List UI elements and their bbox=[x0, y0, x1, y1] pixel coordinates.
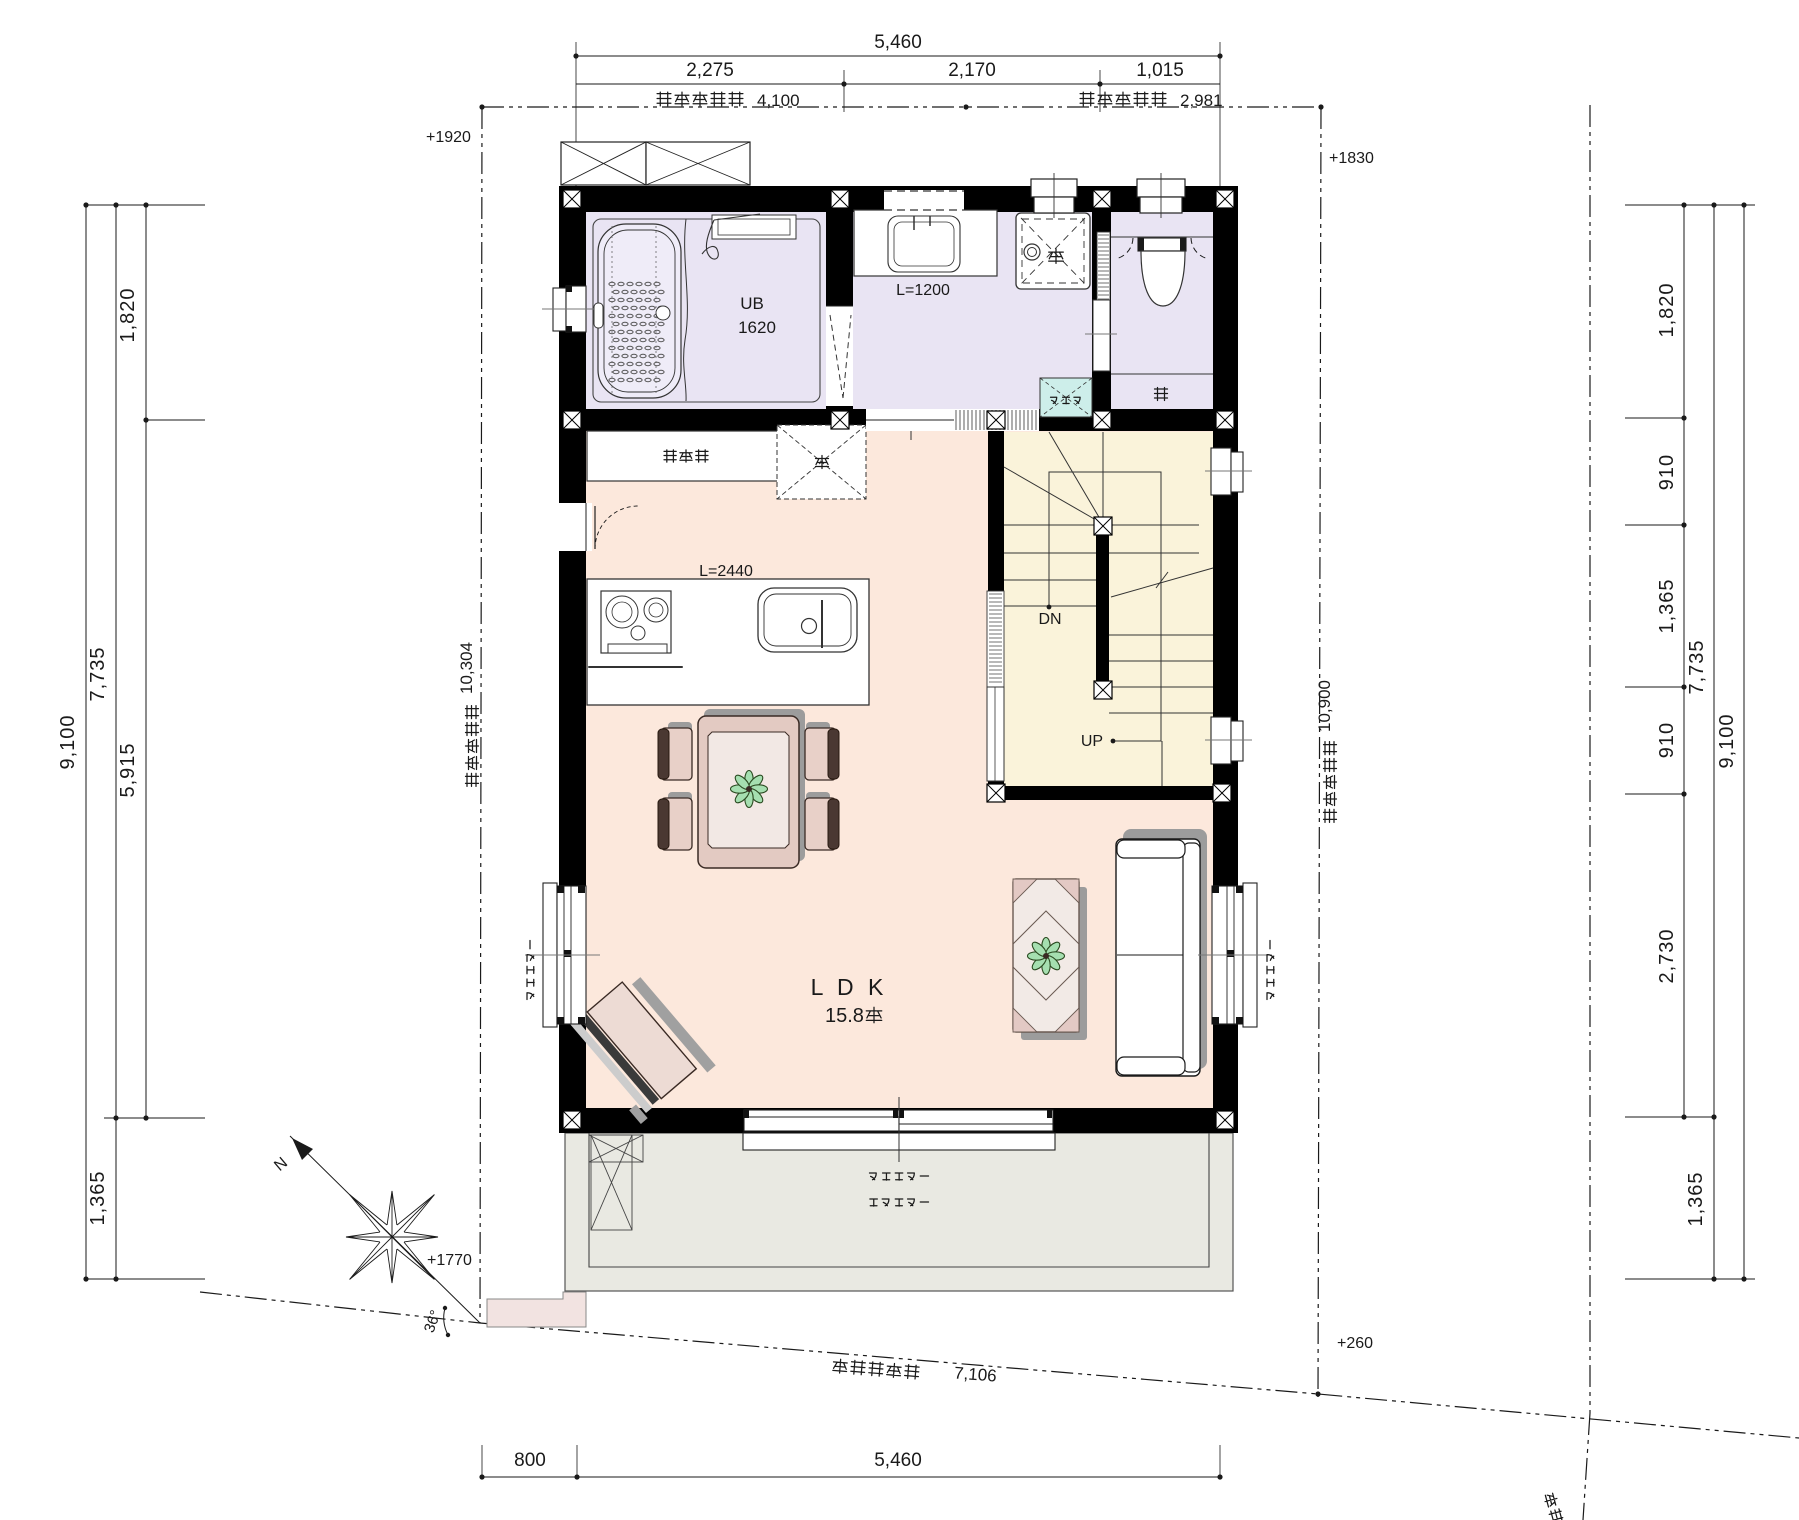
svg-text:800: 800 bbox=[514, 1450, 546, 1471]
svg-text:L D K: L D K bbox=[811, 974, 888, 1000]
svg-text:10,304: 10,304 bbox=[457, 642, 476, 694]
svg-text:1,015: 1,015 bbox=[1136, 60, 1184, 81]
svg-text:+1920: +1920 bbox=[426, 129, 471, 146]
svg-text:1,365: 1,365 bbox=[1685, 1171, 1707, 1226]
svg-text:15.8: 15.8 bbox=[825, 1005, 864, 1027]
svg-text:L=1200: L=1200 bbox=[896, 282, 950, 299]
svg-text:1620: 1620 bbox=[738, 318, 776, 337]
svg-text:UB: UB bbox=[740, 294, 764, 313]
svg-text:1,365: 1,365 bbox=[1656, 578, 1678, 633]
svg-text:5,915: 5,915 bbox=[117, 742, 139, 797]
svg-text:1,820: 1,820 bbox=[117, 287, 139, 342]
svg-text:+260: +260 bbox=[1337, 1335, 1373, 1352]
svg-text:1,820: 1,820 bbox=[1656, 282, 1678, 337]
svg-text:DN: DN bbox=[1038, 611, 1061, 628]
svg-text:+1830: +1830 bbox=[1329, 150, 1374, 167]
svg-text:910: 910 bbox=[1656, 454, 1678, 490]
svg-text:+1770: +1770 bbox=[427, 1252, 472, 1269]
svg-text:2,170: 2,170 bbox=[948, 60, 996, 81]
svg-text:2,730: 2,730 bbox=[1656, 928, 1678, 983]
svg-text:4,100: 4,100 bbox=[757, 91, 800, 110]
svg-text:L=2440: L=2440 bbox=[699, 563, 753, 580]
svg-text:5,460: 5,460 bbox=[874, 1450, 922, 1471]
svg-text:2,981: 2,981 bbox=[1180, 91, 1223, 110]
svg-text:7,735: 7,735 bbox=[87, 646, 109, 701]
svg-text:9,100: 9,100 bbox=[1716, 713, 1738, 768]
svg-text:7,106: 7,106 bbox=[953, 1363, 997, 1385]
svg-text:7,735: 7,735 bbox=[1686, 639, 1708, 694]
svg-text:10,900: 10,900 bbox=[1315, 680, 1334, 732]
svg-text:2,275: 2,275 bbox=[686, 60, 734, 81]
svg-text:1,365: 1,365 bbox=[87, 1170, 109, 1225]
svg-text:UP: UP bbox=[1081, 733, 1103, 750]
svg-text:9,100: 9,100 bbox=[57, 714, 79, 769]
svg-text:5,460: 5,460 bbox=[874, 32, 922, 53]
svg-text:910: 910 bbox=[1656, 722, 1678, 758]
